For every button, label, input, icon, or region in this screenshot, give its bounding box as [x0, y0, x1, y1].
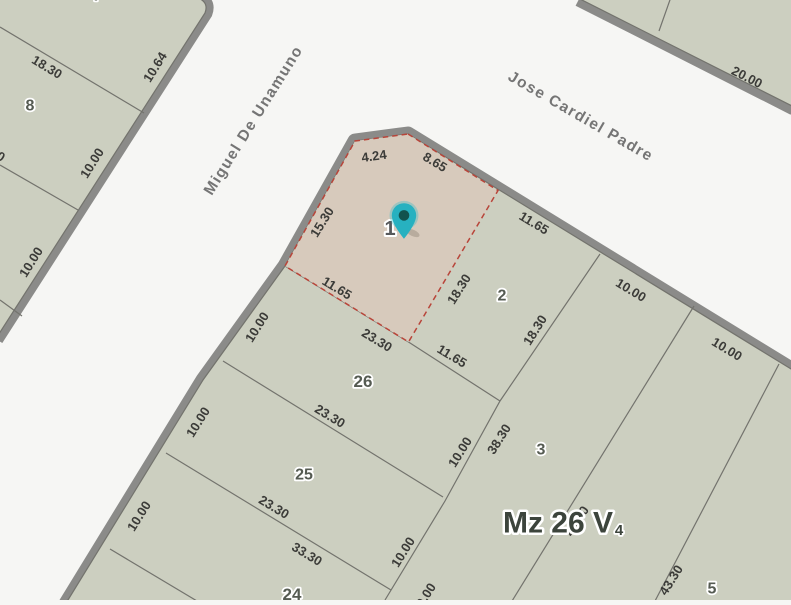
svg-text:8: 8 — [26, 98, 35, 115]
svg-text:26: 26 — [354, 372, 373, 391]
svg-text:3: 3 — [537, 442, 546, 459]
svg-text:2: 2 — [498, 288, 507, 305]
svg-text:4: 4 — [615, 522, 624, 539]
svg-text:24: 24 — [283, 585, 302, 600]
svg-text:7: 7 — [93, 0, 102, 5]
svg-text:25: 25 — [295, 467, 313, 484]
svg-text:Mz 26 V: Mz 26 V — [503, 506, 613, 539]
svg-text:5: 5 — [708, 581, 717, 598]
